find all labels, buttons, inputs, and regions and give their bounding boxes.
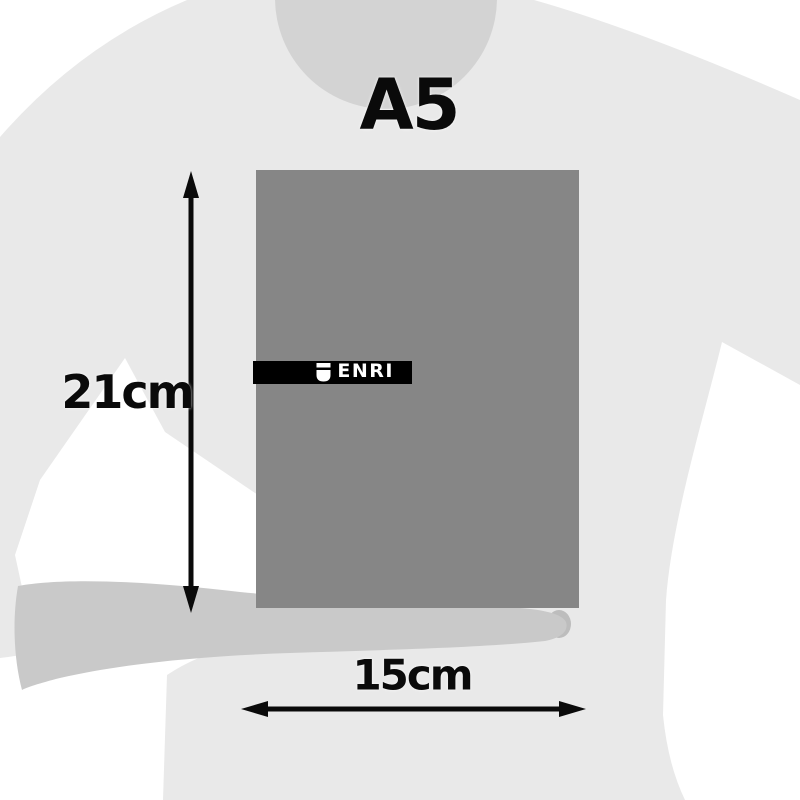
notebook-cover: ENRI	[256, 170, 579, 608]
brand-banner: ENRI	[253, 361, 412, 384]
page-title: A5	[360, 64, 459, 146]
size-diagram-stage: ENRI A5 21cm 15cm	[0, 0, 800, 800]
width-dimension-label: 15cm	[352, 651, 471, 700]
height-dimension-label: 21cm	[61, 365, 192, 419]
shield-badge-icon	[316, 363, 331, 382]
brand-name: ENRI	[337, 362, 394, 381]
